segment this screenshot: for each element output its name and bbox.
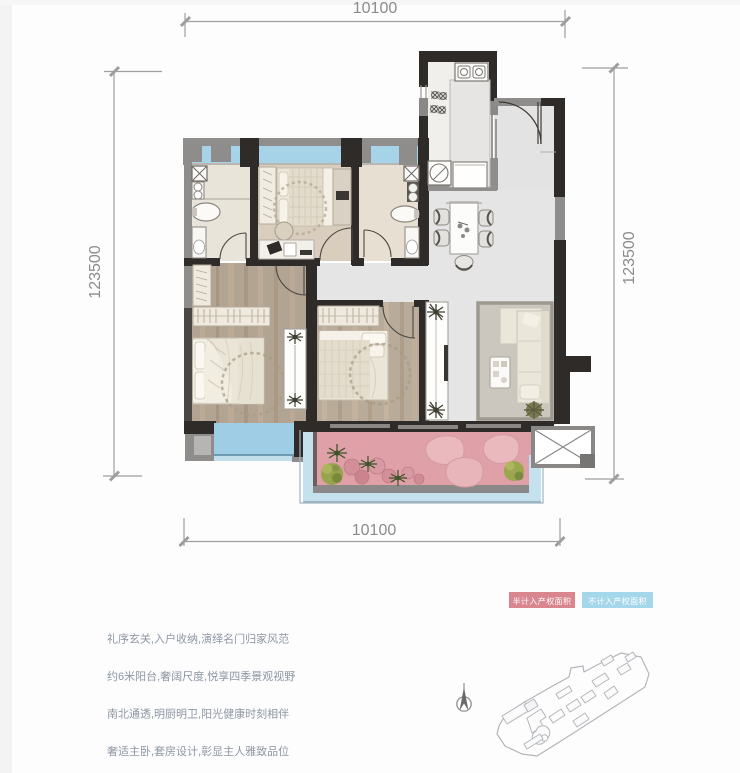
svg-text:123500: 123500 <box>87 245 104 298</box>
svg-text:南北通透,明厨明卫,阳光健康时刻相伴: 南北通透,明厨明卫,阳光健康时刻相伴 <box>107 707 289 721</box>
svg-text:奢适主卧,套房设计,彰显主人雅致品位: 奢适主卧,套房设计,彰显主人雅致品位 <box>107 744 289 758</box>
svg-text:123500: 123500 <box>621 231 638 284</box>
svg-text:不计入产权面积: 不计入产权面积 <box>588 596 647 606</box>
svg-text:礼序玄关,入户收纳,演绎名门归家风范: 礼序玄关,入户收纳,演绎名门归家风范 <box>107 632 289 646</box>
svg-text:10100: 10100 <box>353 0 398 17</box>
svg-text:10100: 10100 <box>352 522 397 539</box>
svg-text:约6米阳台,奢阔尺度,悦享四季景观视野: 约6米阳台,奢阔尺度,悦享四季景观视野 <box>107 669 295 683</box>
svg-text:半计入产权面积: 半计入产权面积 <box>513 596 572 606</box>
